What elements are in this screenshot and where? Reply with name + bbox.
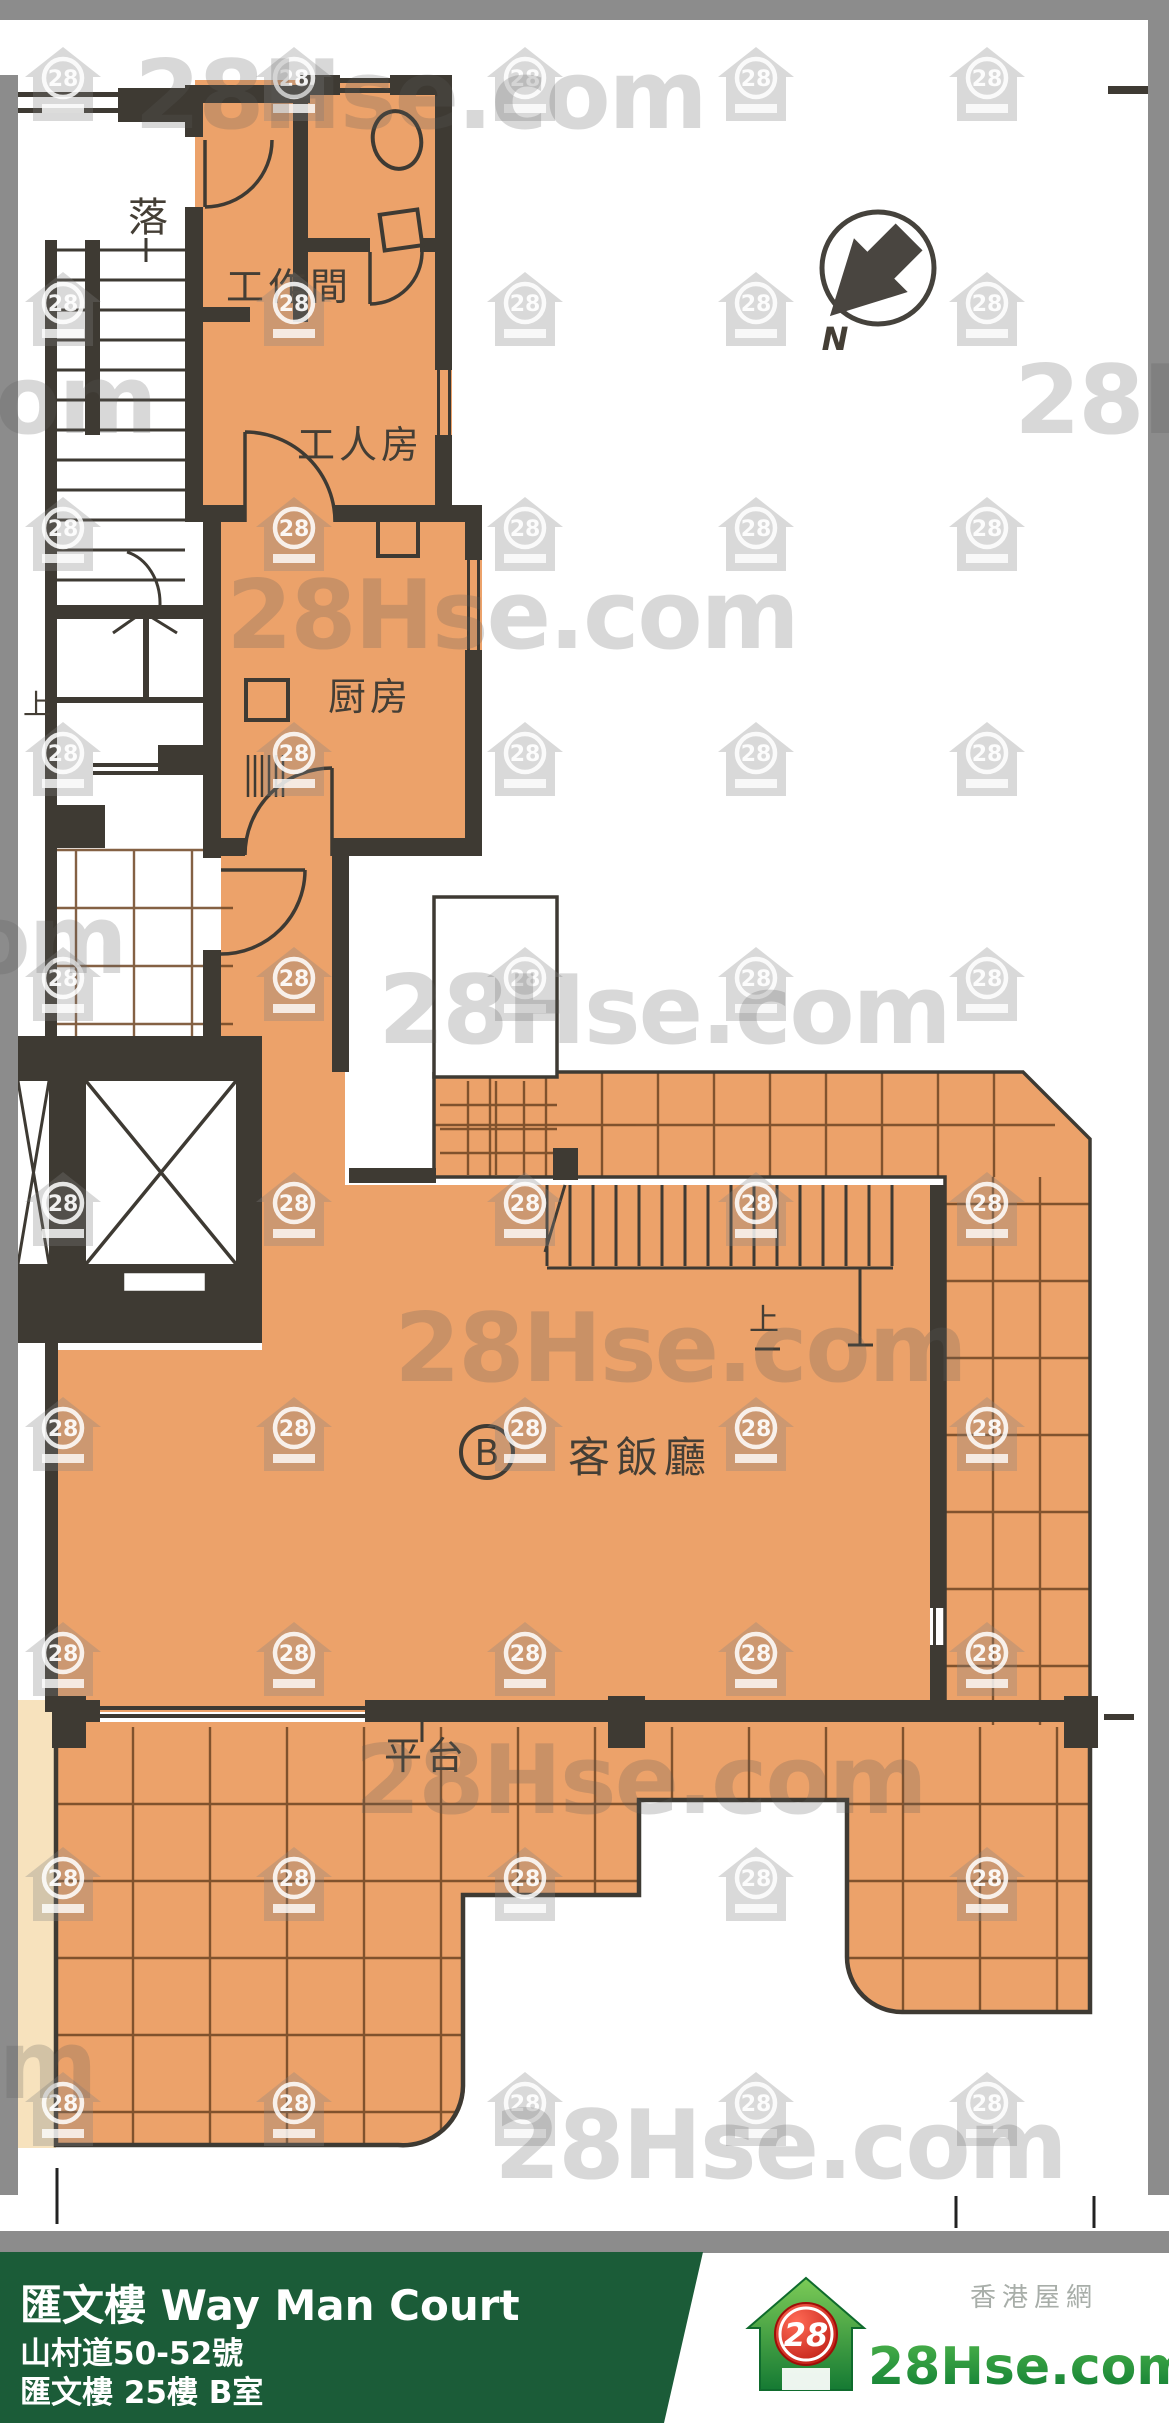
floor-plan-canvas: 28 <box>0 0 1169 2423</box>
compass-n-label: N <box>822 320 849 358</box>
unit-info: 匯文樓 25樓 B室 <box>20 2375 263 2411</box>
watermark-brand-text: 28Hse.com <box>1014 346 1169 456</box>
watermark-brand-text: 28Hse.com <box>494 2091 1065 2201</box>
room-label-kitchen: 厨房 <box>328 675 412 719</box>
stair-down-label: 落 <box>128 195 168 241</box>
stair-up-common-label: 上 <box>23 688 51 721</box>
floor-plan-page: 28 <box>0 0 1169 2423</box>
watermark-brand-text: 28Hse.com <box>378 956 949 1066</box>
watermark-brand-text: 28Hse.com <box>226 561 797 671</box>
watermark-brand-text: 28Hse.com <box>394 1294 965 1404</box>
room-label-maid-room: 工人房 <box>297 423 423 467</box>
building-name: 匯文樓 Way Man Court <box>20 2281 520 2330</box>
logo-number: 28 <box>784 2316 829 2354</box>
frame-top <box>0 0 1169 20</box>
watermark-brand-text: 28Hse.com <box>0 886 126 996</box>
footer-divider <box>0 2231 1169 2253</box>
watermark-brand-text: 28Hse.com <box>0 346 156 456</box>
watermark-brand-text: 28Hse.com <box>0 2011 96 2121</box>
logo-brand-text: 28Hse.com <box>868 2337 1169 2397</box>
site-name-cn: 香港屋網 <box>970 2283 1098 2313</box>
brand-logo: 28 28Hse.com <box>748 2278 1169 2397</box>
frame-right <box>1148 0 1169 2195</box>
watermark-brand-text: 28Hse.com <box>134 41 705 151</box>
watermark-brand-text: 28Hse.com <box>354 1726 925 1836</box>
room-label-living-dining: 客飯廳 <box>568 1433 712 1482</box>
building-address: 山村道50-52號 <box>20 2336 243 2372</box>
